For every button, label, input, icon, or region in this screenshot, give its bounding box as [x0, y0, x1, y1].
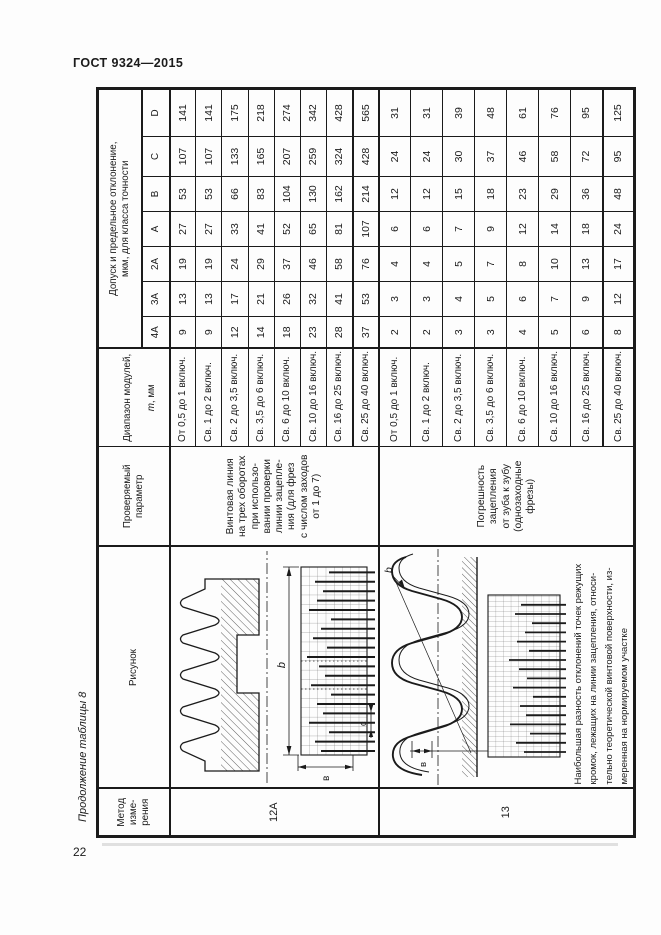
tolerance-value-cell: 24	[603, 212, 635, 247]
tolerance-value-cell: 9	[170, 317, 196, 349]
scanned-document-page: { "page": { "header": "ГОСТ 9324—2015", …	[0, 0, 661, 935]
tolerance-value-cell: 14	[248, 317, 274, 349]
tolerance-value-cell: 19	[170, 247, 196, 282]
tolerance-value-cell: 5	[539, 317, 571, 349]
module-range-cell: Св. 3,5 до 6 включ.	[248, 349, 274, 447]
tolerance-value-cell: 10	[539, 247, 571, 282]
tolerance-value-cell: 23	[300, 317, 326, 349]
header-class-b: В	[142, 177, 170, 212]
dimension-c-label: с	[358, 722, 368, 727]
tolerance-value-cell: 259	[300, 137, 326, 177]
tolerance-value-cell: 13	[196, 282, 222, 317]
tolerance-value-cell: 2	[379, 317, 411, 349]
tolerance-value-cell: 12	[507, 212, 539, 247]
tolerance-value-cell: 24	[379, 137, 411, 177]
header-tolerance: Допуск и предельное отклонение, мкм, для…	[98, 88, 142, 348]
module-range-cell: Св. 16 до 25 включ.	[327, 349, 353, 447]
tolerance-value-cell: 37	[475, 137, 507, 177]
tolerance-value-cell: 12	[222, 317, 248, 349]
tolerance-value-cell: 81	[327, 212, 353, 247]
tolerance-value-cell: 274	[274, 88, 300, 136]
dimension-v-label: в	[321, 776, 332, 781]
tolerance-value-cell: 4	[411, 247, 443, 282]
tolerance-value-cell: 53	[353, 282, 379, 317]
tolerance-value-cell: 565	[353, 88, 379, 136]
hob-hatching	[221, 580, 259, 772]
tolerance-value-cell: 17	[603, 247, 635, 282]
profile-outline-inner	[399, 555, 469, 773]
tolerance-value-cell: 428	[353, 137, 379, 177]
tolerance-value-cell: 6	[507, 282, 539, 317]
label-b: b	[383, 568, 395, 574]
tolerance-value-cell: 6	[379, 212, 411, 247]
tolerance-value-cell: 3	[475, 317, 507, 349]
tolerance-value-cell: 95	[571, 88, 603, 136]
tolerance-value-cell: 30	[443, 137, 475, 177]
tolerance-value-cell: 4	[443, 282, 475, 317]
tolerance-value-cell: 18	[571, 212, 603, 247]
tolerance-value-cell: 130	[300, 177, 326, 212]
tolerance-value-cell: 17	[222, 282, 248, 317]
header-method: Метод изме- рения	[98, 789, 170, 837]
tolerance-value-cell: 19	[196, 247, 222, 282]
tolerance-value-cell: 14	[539, 212, 571, 247]
module-range-cell: Св. 1 до 2 включ.	[196, 349, 222, 447]
module-range-cell: Св. 3,5 до 6 включ.	[475, 349, 507, 447]
tolerance-value-cell: 48	[603, 177, 635, 212]
header-class-3a: 3А	[142, 282, 170, 317]
tolerance-value-cell: 7	[539, 282, 571, 317]
profile-hatching	[462, 558, 477, 778]
module-range-cell: Св. 16 до 25 включ.	[571, 349, 603, 447]
tolerance-value-cell: 218	[248, 88, 274, 136]
tolerance-value-cell: 52	[274, 212, 300, 247]
tooth-profile: b	[383, 550, 477, 786]
module-range-cell: Св. 25 до 40 включ.	[603, 349, 635, 447]
header-figure: Рисунок	[98, 547, 170, 789]
tolerance-value-cell: 13	[170, 282, 196, 317]
tolerance-value-cell: 428	[327, 88, 353, 136]
tolerance-value-cell: 18	[274, 317, 300, 349]
tolerance-value-cell: 28	[327, 317, 353, 349]
tolerance-value-cell: 32	[300, 282, 326, 317]
table-continuation-note: Продолжение таблицы 8	[77, 692, 89, 822]
tolerance-value-cell: 107	[170, 137, 196, 177]
tolerance-value-cell: 13	[571, 247, 603, 282]
figure-cell-13: b в Наибольшая разность отклонений точек…	[379, 547, 635, 789]
module-range-line2: , мм	[146, 384, 157, 403]
document-title: ГОСТ 9324—2015	[73, 56, 183, 70]
tolerance-value-cell: 53	[170, 177, 196, 212]
header-class-2a: 2А	[142, 247, 170, 282]
tolerance-value-cell: 12	[379, 177, 411, 212]
dimension-v-label-13: в	[418, 762, 429, 767]
tolerance-value-cell: 3	[411, 282, 443, 317]
tolerance-value-cell: 29	[248, 247, 274, 282]
parameter-cell-12a: Винтовая линия на трех оборотах при испо…	[170, 447, 379, 547]
tolerance-value-cell: 24	[222, 247, 248, 282]
tooth-meshing-figure: b в	[380, 550, 566, 786]
tolerance-value-cell: 29	[539, 177, 571, 212]
engagement-line	[395, 581, 471, 754]
tolerance-table: Метод изме- рения Рисунок Проверяемый па…	[96, 87, 636, 838]
tolerance-value-cell: 37	[353, 317, 379, 349]
tolerance-value-cell: 214	[353, 177, 379, 212]
header-class-4a: 4А	[142, 317, 170, 349]
module-range-line1: Диапазон модулей,	[122, 354, 133, 442]
tolerance-value-cell: 342	[300, 88, 326, 136]
tolerance-value-cell: 9	[475, 212, 507, 247]
tolerance-value-cell: 7	[475, 247, 507, 282]
tolerance-value-cell: 83	[248, 177, 274, 212]
tolerance-value-cell: 3	[443, 317, 475, 349]
method-cell-13: 13	[379, 789, 635, 837]
tolerance-value-cell: 141	[170, 88, 196, 136]
tolerance-value-cell: 133	[222, 137, 248, 177]
tolerance-value-cell: 12	[603, 282, 635, 317]
tolerance-value-cell: 58	[539, 137, 571, 177]
tolerance-value-cell: 7	[443, 212, 475, 247]
tolerance-value-cell: 207	[274, 137, 300, 177]
tolerance-value-cell: 107	[353, 212, 379, 247]
tolerance-value-cell: 175	[222, 88, 248, 136]
header-module-range: Диапазон модулей, m, мм	[98, 349, 170, 447]
tolerance-value-cell: 2	[411, 317, 443, 349]
tolerance-value-cell: 48	[475, 88, 507, 136]
tolerance-value-cell: 21	[248, 282, 274, 317]
tolerance-value-cell: 72	[571, 137, 603, 177]
figure-note: Наибольшая разность отклонений точек реж…	[570, 548, 633, 788]
tolerance-value-cell: 27	[196, 212, 222, 247]
tolerance-value-cell: 8	[507, 247, 539, 282]
tolerance-value-cell: 8	[603, 317, 635, 349]
tolerance-value-cell: 4	[507, 317, 539, 349]
tolerance-value-cell: 53	[196, 177, 222, 212]
method-cell-12a: 12А	[170, 789, 379, 837]
tolerance-value-cell: 4	[379, 247, 411, 282]
tolerance-value-cell: 27	[170, 212, 196, 247]
module-range-cell: Св. 2 до 3,5 включ.	[222, 349, 248, 447]
tolerance-value-cell: 9	[571, 282, 603, 317]
tolerance-value-cell: 76	[353, 247, 379, 282]
header-class-d: D	[142, 88, 170, 136]
page-number: 22	[73, 845, 86, 859]
tolerance-value-cell: 9	[196, 317, 222, 349]
dimension-v-lines	[298, 756, 353, 772]
scan-shadow	[102, 843, 618, 846]
tolerance-value-cell: 3	[379, 282, 411, 317]
module-range-cell: Св. 25 до 40 включ.	[353, 349, 379, 447]
tolerance-value-cell: 41	[327, 282, 353, 317]
module-range-cell: От 0,5 до 1 включ.	[170, 349, 196, 447]
tolerance-value-cell: 125	[603, 88, 635, 136]
tolerance-value-cell: 31	[411, 88, 443, 136]
tolerance-value-cell: 15	[443, 177, 475, 212]
figure-cell-12a: b в с	[170, 547, 379, 789]
tolerance-value-cell: 6	[571, 317, 603, 349]
helix-test-figure: b в с	[171, 550, 375, 786]
tolerance-value-cell: 6	[411, 212, 443, 247]
tolerance-value-cell: 61	[507, 88, 539, 136]
hob-section	[180, 552, 267, 784]
module-range-cell: Св. 1 до 2 включ.	[411, 349, 443, 447]
module-range-cell: Св. 6 до 10 включ.	[274, 349, 300, 447]
rotated-table-area: Метод изме- рения Рисунок Проверяемый па…	[96, 90, 632, 838]
tolerance-value-cell: 12	[411, 177, 443, 212]
tolerance-value-cell: 41	[248, 212, 274, 247]
parameter-cell-13: Погрешность зацепления от зуба к зубу (о…	[379, 447, 635, 547]
header-parameter: Проверяемый параметр	[98, 447, 170, 547]
module-range-cell: От 0,5 до 1 включ.	[379, 349, 411, 447]
tolerance-value-cell: 165	[248, 137, 274, 177]
tolerance-value-cell: 5	[475, 282, 507, 317]
tolerance-value-cell: 46	[507, 137, 539, 177]
tolerance-value-cell: 33	[222, 212, 248, 247]
tolerance-value-cell: 23	[507, 177, 539, 212]
module-range-cell: Св. 10 до 16 включ.	[539, 349, 571, 447]
deviation-chart-13: в	[410, 596, 566, 768]
tolerance-value-cell: 24	[411, 137, 443, 177]
tolerance-value-cell: 324	[327, 137, 353, 177]
module-range-cell: Св. 6 до 10 включ.	[507, 349, 539, 447]
tolerance-value-cell: 36	[571, 177, 603, 212]
tolerance-value-cell: 58	[327, 247, 353, 282]
tolerance-value-cell: 65	[300, 212, 326, 247]
header-class-a: А	[142, 212, 170, 247]
tolerance-value-cell: 31	[379, 88, 411, 136]
deviation-chart: b в с	[276, 568, 375, 782]
tolerance-value-cell: 39	[443, 88, 475, 136]
tolerance-value-cell: 66	[222, 177, 248, 212]
tolerance-value-cell: 107	[196, 137, 222, 177]
tolerance-value-cell: 37	[274, 247, 300, 282]
tolerance-value-cell: 95	[603, 137, 635, 177]
tolerance-value-cell: 18	[475, 177, 507, 212]
rotated-table-inner: Метод изме- рения Рисунок Проверяемый па…	[96, 90, 632, 838]
tolerance-value-cell: 141	[196, 88, 222, 136]
header-class-c: С	[142, 137, 170, 177]
tolerance-value-cell: 104	[274, 177, 300, 212]
tolerance-value-cell: 26	[274, 282, 300, 317]
tolerance-value-cell: 76	[539, 88, 571, 136]
tolerance-value-cell: 46	[300, 247, 326, 282]
dimension-b-label: b	[276, 662, 288, 668]
tolerance-value-cell: 162	[327, 177, 353, 212]
module-range-cell: Св. 10 до 16 включ.	[300, 349, 326, 447]
tolerance-value-cell: 5	[443, 247, 475, 282]
module-range-cell: Св. 2 до 3,5 включ.	[443, 349, 475, 447]
module-symbol: m	[146, 403, 157, 411]
